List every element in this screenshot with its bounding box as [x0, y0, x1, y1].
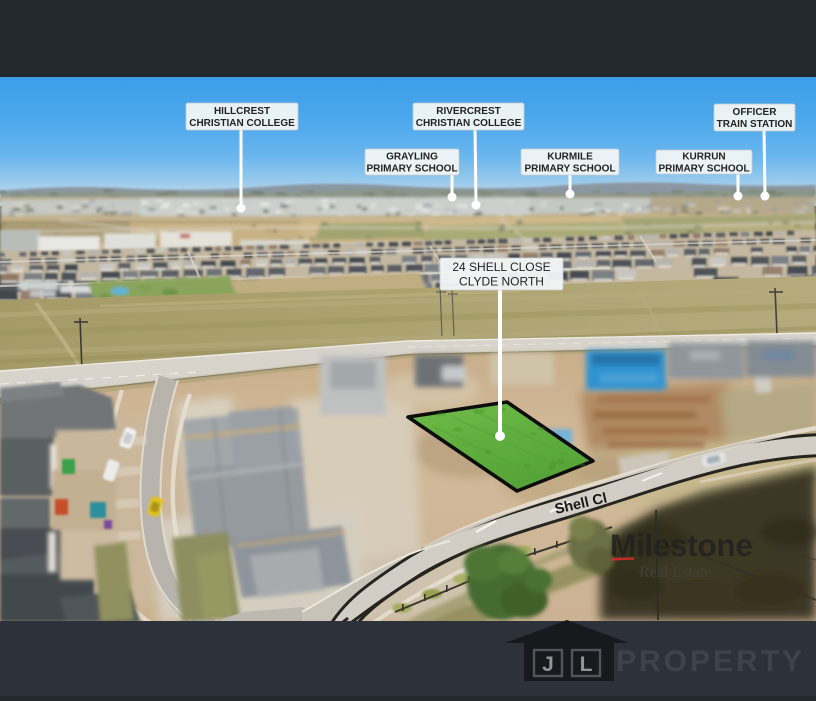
svg-text:GRAYLING: GRAYLING [386, 152, 438, 163]
svg-text:HILLCREST: HILLCREST [214, 106, 270, 117]
svg-text:CHRISTIAN COLLEGE: CHRISTIAN COLLEGE [189, 118, 295, 129]
svg-text:24 SHELL CLOSE: 24 SHELL CLOSE [452, 260, 550, 274]
svg-text:Real Estate: Real Estate [639, 564, 711, 581]
svg-text:TRAIN STATION: TRAIN STATION [717, 119, 793, 130]
svg-text:PRIMARY SCHOOL: PRIMARY SCHOOL [658, 164, 749, 175]
svg-text:OFFICER: OFFICER [733, 107, 778, 118]
svg-text:PRIMARY SCHOOL: PRIMARY SCHOOL [366, 164, 457, 175]
svg-text:PRIMARY SCHOOL: PRIMARY SCHOOL [524, 164, 615, 175]
svg-text:PROPERTY: PROPERTY [616, 645, 805, 678]
svg-text:L: L [580, 653, 593, 676]
svg-text:CHRISTIAN COLLEGE: CHRISTIAN COLLEGE [416, 118, 522, 129]
svg-text:CLYDE NORTH: CLYDE NORTH [459, 274, 544, 288]
svg-text:RIVERCREST: RIVERCREST [436, 106, 500, 117]
svg-text:J: J [542, 653, 554, 676]
svg-text:KURRUN: KURRUN [682, 152, 725, 163]
svg-text:KURMILE: KURMILE [547, 152, 593, 163]
